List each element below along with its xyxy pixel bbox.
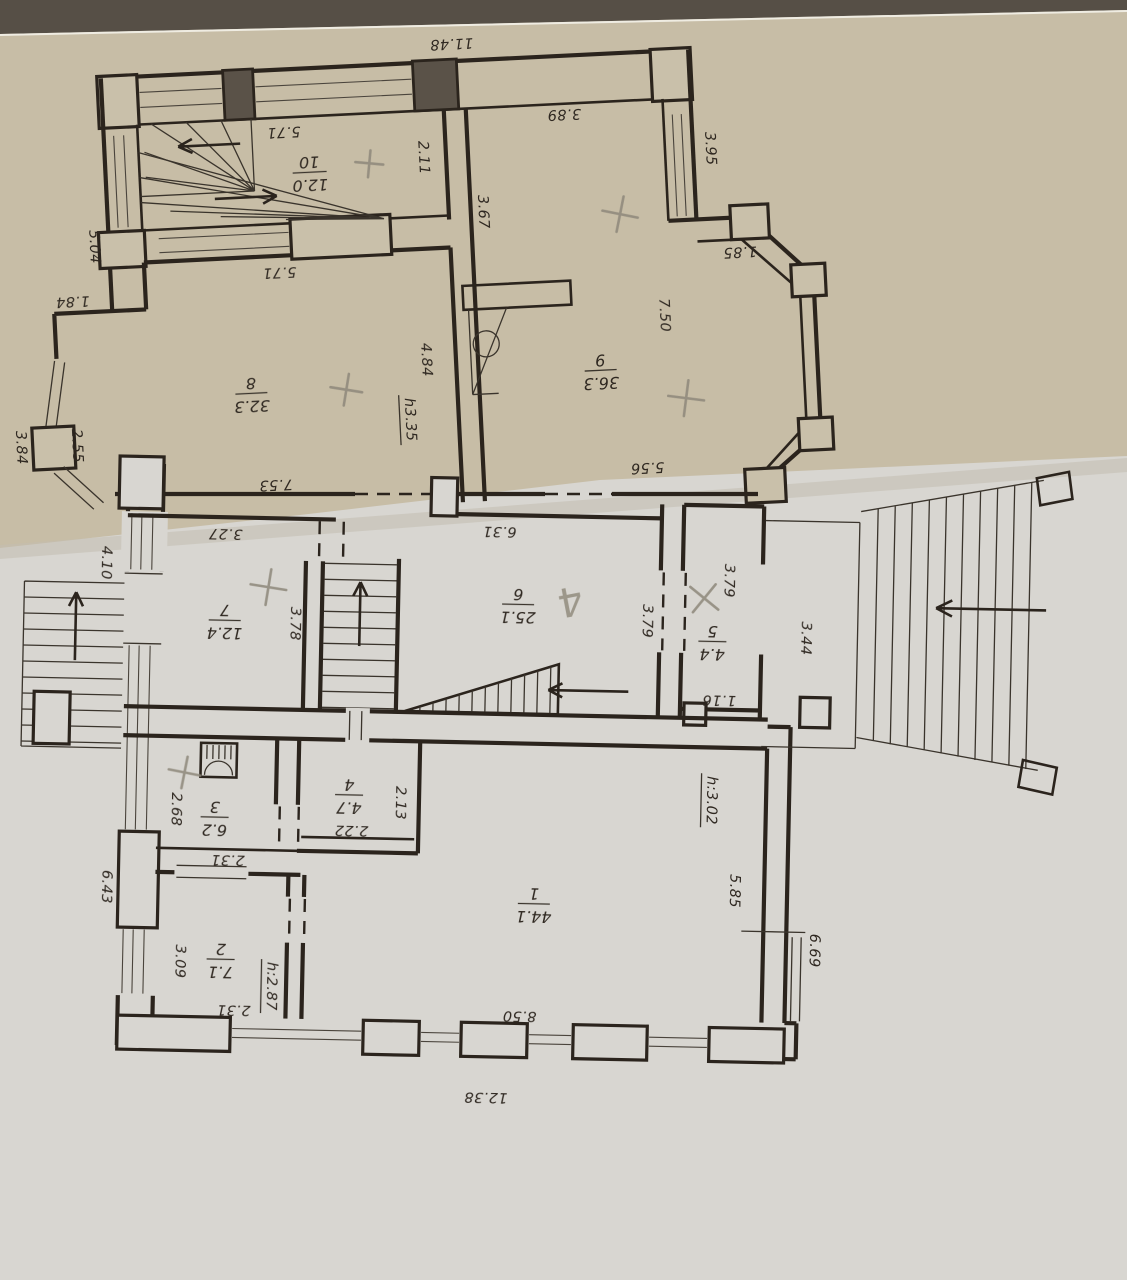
stair-arrow-up	[352, 582, 367, 646]
room-3-number: 3	[210, 797, 221, 816]
room-4-label: 4 4.7	[335, 775, 364, 818]
dim-h3-35-text: h3.35	[401, 398, 419, 442]
boiler-icon	[200, 743, 237, 778]
room-9-number: 9	[595, 351, 606, 370]
dim-h2-87: h:2.87	[260, 959, 279, 1013]
dim-5-56: 5.56	[630, 458, 665, 476]
corridor-opening-dashed	[662, 572, 686, 650]
dim-1-84: 1.84	[55, 292, 90, 310]
wall-pier	[98, 230, 146, 268]
dim-6-69: 6.69	[806, 934, 823, 968]
dim-h3-02: h:3.02	[700, 773, 719, 827]
dim-5-71-room8: 5.71	[262, 263, 297, 281]
pencil-crosses-ground	[166, 562, 730, 802]
left-entrance-stairs	[21, 581, 124, 748]
dim-3-89: 3.89	[547, 105, 582, 123]
dim-2-22: 2.22	[334, 822, 368, 839]
room-8-area: 32.3	[234, 396, 271, 417]
wall-pier	[461, 1022, 528, 1057]
room-7-area: 12.4	[206, 623, 242, 643]
dim-5-71-room10: 5.71	[266, 123, 301, 141]
door-opening-dashed	[279, 806, 299, 850]
wall-pier	[412, 59, 458, 111]
wall-pier	[798, 417, 834, 451]
room-2-label: 2 7.1	[206, 939, 235, 982]
wall-pier	[119, 456, 164, 509]
dim-h3-02-text: h:3.02	[703, 776, 720, 825]
dim-3-67: 3.67	[474, 195, 492, 230]
dim-3-79-right: 3.79	[720, 564, 737, 598]
dim-3-09: 3.09	[171, 944, 188, 978]
room-2-area: 7.1	[207, 962, 233, 982]
dim-5-04: 5.04	[85, 230, 103, 265]
wall-pier	[117, 831, 159, 928]
dim-3-95: 3.95	[701, 131, 719, 166]
wall-pier	[791, 263, 827, 297]
room-3-label: 3 6.2	[200, 797, 229, 840]
dim-2-31-room3: 2.31	[211, 851, 245, 868]
dim-3-78: 3.78	[286, 607, 303, 641]
dim-2-13: 2.13	[392, 786, 409, 820]
dim-3-44: 3.44	[797, 621, 814, 655]
paper-background	[0, 0, 1127, 559]
dim-3-27: 3.27	[208, 525, 243, 542]
dimension-extension-lines	[739, 931, 805, 1021]
room-2-walls	[285, 875, 305, 1023]
door-opening-dashed	[289, 899, 305, 943]
dim-11-48: 11.48	[429, 34, 473, 52]
room-10-number: 10	[299, 152, 320, 172]
room-2-number: 2	[216, 940, 227, 959]
ground-floor: 4 3.27 6.31 4.10 3.78 3.79 3.79 3.44 1.1…	[14, 450, 1073, 1117]
dim-8-50: 8.50	[502, 1007, 536, 1024]
room-6-label: 6 25.1	[500, 585, 536, 628]
upper-page-beige	[0, 0, 1127, 548]
floor-plan-svg: 11.48 5.71 2.11 3.89 3.95 1.85 3.67 7.50…	[0, 0, 1127, 1280]
room-3-area: 6.2	[201, 820, 227, 840]
room7-wall-and-stair	[303, 557, 399, 712]
dim-h2-87-text: h:2.87	[263, 962, 280, 1011]
room-7-label: 7 12.4	[206, 600, 242, 643]
wall-pier	[745, 467, 787, 503]
room-5-label: 5 4.4	[698, 622, 727, 665]
rooms-3-4	[155, 736, 420, 882]
room-5-number: 5	[707, 622, 718, 641]
room-5-area: 4.4	[699, 645, 725, 665]
stair-arrow-left	[548, 683, 628, 699]
dim-4-84: 4.84	[417, 342, 435, 377]
wall-pier	[573, 1025, 648, 1061]
wall-pier	[290, 214, 392, 259]
basement-stair-profile	[405, 661, 629, 716]
room-4-area: 4.7	[335, 798, 362, 818]
wall-pier	[650, 48, 692, 102]
dim-4-10: 4.10	[98, 546, 115, 580]
pencil-note-4: 4	[553, 575, 587, 625]
wall-pier	[730, 204, 770, 240]
wall-pier	[431, 478, 458, 517]
room-4-number: 4	[344, 775, 355, 794]
wall-pier	[800, 697, 831, 728]
room-1-number: 1	[529, 884, 540, 903]
dim-2-11: 2.11	[414, 140, 432, 175]
dim-2-31-room2: 2.31	[216, 1001, 250, 1018]
dim-3-84: 3.84	[12, 430, 30, 465]
dim-2-68: 2.68	[167, 792, 184, 826]
scanned-floor-plan-page: 11.48 5.71 2.11 3.89 3.95 1.85 3.67 7.50…	[0, 0, 1127, 1280]
stair-pier	[33, 691, 70, 744]
ground-bottom-wall	[117, 1015, 797, 1063]
room-10-area: 12.0	[292, 175, 329, 196]
room-9-area: 36.3	[583, 373, 620, 394]
dim-6-43: 6.43	[98, 870, 115, 904]
stair-cap	[1018, 760, 1057, 795]
dim-1-16: 1.16	[702, 691, 736, 708]
wall-pier	[223, 69, 255, 120]
dim-1-85: 1.85	[723, 243, 758, 261]
room-1-label: 1 44.1	[516, 884, 552, 927]
dim-7-50: 7.50	[655, 298, 673, 333]
wall-pier	[709, 1027, 785, 1063]
room-8-number: 8	[245, 374, 256, 393]
wall-pier	[117, 1015, 231, 1051]
stair-arrow-up	[68, 592, 83, 660]
room-6-number: 6	[513, 585, 524, 604]
dim-12-38: 12.38	[464, 1088, 508, 1105]
dim-7-53: 7.53	[259, 475, 294, 493]
room-1-area: 44.1	[516, 907, 552, 927]
dim-3-79-left: 3.79	[638, 604, 655, 638]
dim-2-55: 2.55	[68, 429, 86, 464]
dim-5-85: 5.85	[726, 874, 743, 908]
room-7-number: 7	[219, 601, 230, 620]
room-6-area: 25.1	[500, 608, 536, 628]
wall-pier	[363, 1020, 420, 1055]
dim-6-31: 6.31	[483, 523, 517, 540]
